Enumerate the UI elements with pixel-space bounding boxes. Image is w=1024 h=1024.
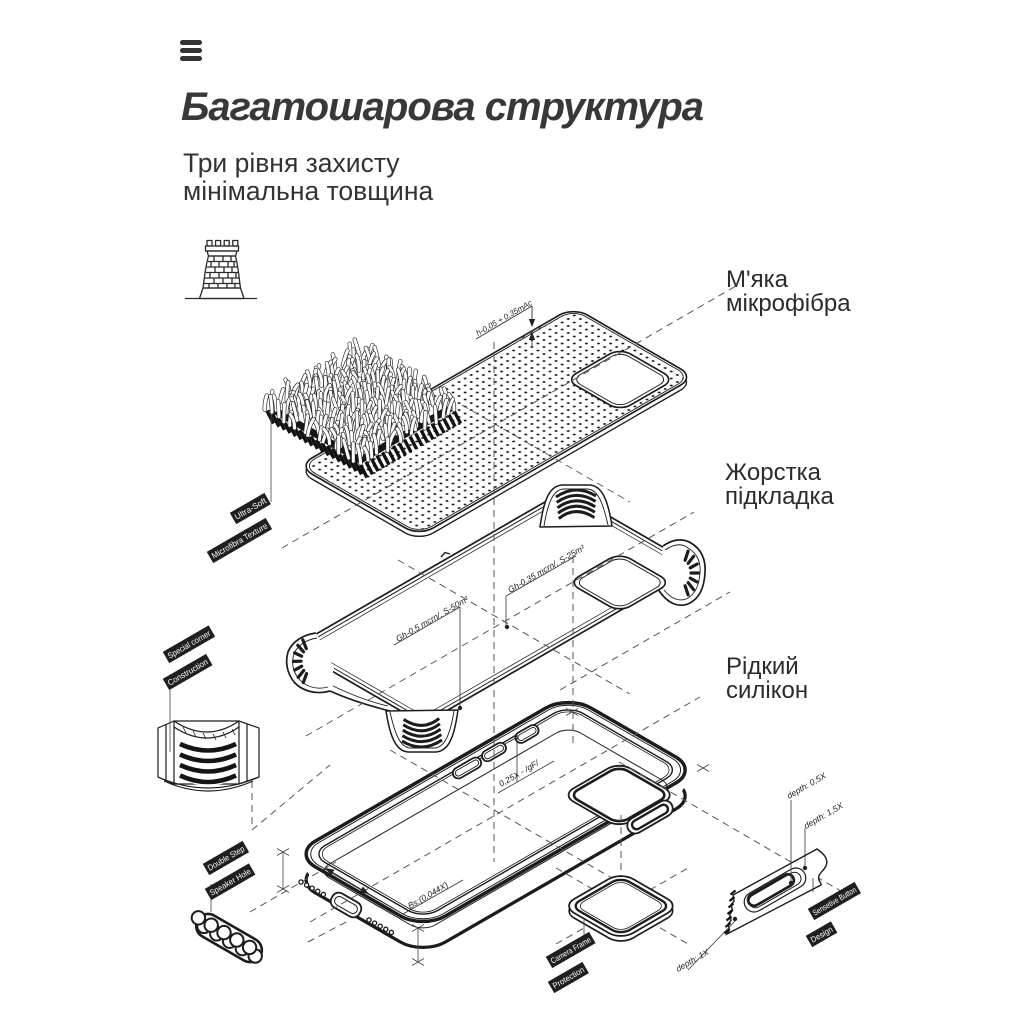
svg-text:Camera Frame: Camera Frame: [549, 935, 593, 965]
svg-text:h-0,05 + 0,35mAc: h-0,05 + 0,35mAc: [475, 298, 534, 337]
svg-text:Construction: Construction: [166, 657, 210, 688]
svg-text:Sensetive Button: Sensetive Button: [811, 885, 858, 917]
svg-text:depth: 1,5X: depth: 1,5X: [802, 800, 845, 831]
svg-text:depth: 0,5X: depth: 0,5X: [785, 770, 828, 801]
svg-text:Microfibra Texture: Microfibra Texture: [210, 521, 269, 561]
svg-text:depth: 1X: depth: 1X: [674, 947, 711, 974]
